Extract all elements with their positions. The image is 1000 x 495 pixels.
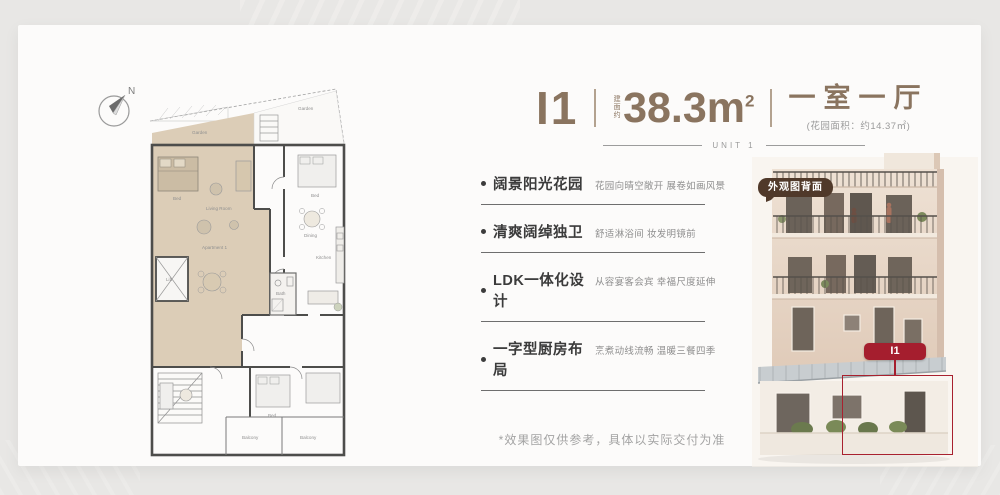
area-exponent: 2 (745, 91, 754, 110)
bathroom: Bath (270, 273, 296, 315)
svg-text:Apartment 1: Apartment 1 (202, 245, 227, 250)
kitchen: Kitchen (316, 227, 344, 283)
svg-text:Bath: Bath (276, 291, 286, 296)
feature-item: LDK一体化设计 从容宴客会宾 幸福尺度延伸 (481, 269, 705, 322)
room-label: Garden (192, 130, 208, 135)
svg-text:Bed: Bed (268, 413, 277, 418)
feature-desc: 从容宴客会宾 幸福尺度延伸 (595, 274, 716, 288)
feature-item: 阔景阳光花园 花园向晴空敞开 展卷如画风景 (481, 173, 705, 205)
layout-type-label: 一室一厅 (788, 85, 928, 112)
divider (770, 89, 772, 127)
area-value: 38.3m2 (623, 87, 754, 130)
compass-n-label: N (128, 86, 135, 97)
disclaimer-text: *效果图仅供参考，具体以实际交付为准 (486, 431, 738, 448)
unit-tag: I1 (864, 343, 926, 360)
bullet-icon (481, 229, 486, 234)
feature-title: 清爽阔绰独卫 (493, 221, 595, 242)
marketing-page: { "colors":{"accent_brown":"#8a745f","ba… (0, 0, 1000, 495)
divider-line (603, 145, 702, 146)
unit-highlight-box (842, 375, 953, 455)
feature-item: 清爽阔绰独卫 舒适淋浴间 妆发明镜前 (481, 221, 705, 253)
badge-label: 外观图背面 (768, 182, 823, 193)
feature-desc: 烹煮动线流畅 温暖三餐四季 (595, 343, 716, 357)
divider (594, 89, 596, 127)
feature-item: 一字型厨房布局 烹煮动线流畅 温暖三餐四季 (481, 338, 705, 391)
divider-line (766, 145, 865, 146)
svg-text:Bed: Bed (173, 196, 182, 201)
bullet-icon (481, 181, 486, 186)
room-label: Garden (298, 106, 314, 111)
furniture-right-unit: Bed Dining (298, 155, 342, 311)
callout-leader-line (894, 360, 896, 376)
unit-caption-row: UNIT 1 (603, 141, 865, 150)
content-card: N Garden Garden (18, 25, 981, 466)
building-photo: 外观图背面 I1 (746, 153, 988, 485)
layout-group: 一室一厅 (花园面积：约14.37㎡) (788, 85, 928, 132)
feature-title: LDK一体化设计 (493, 269, 595, 311)
feature-title: 阔景阳光花园 (493, 173, 595, 194)
exterior-view-badge: 外观图背面 (758, 178, 833, 197)
svg-text:Lift: Lift (166, 277, 173, 282)
svg-text:Living Room: Living Room (206, 206, 232, 211)
bullet-icon (481, 288, 486, 293)
feature-list: 阔景阳光花园 花园向晴空敞开 展卷如画风景 清爽阔绰独卫 舒适淋浴间 妆发明镜前… (481, 173, 705, 407)
unit-title-row: I1 建面约 38.3m2 一室一厅 (花园面积：约14.37㎡) (536, 79, 928, 137)
compass-north-icon: N (90, 81, 142, 133)
svg-text:Balcony: Balcony (300, 435, 317, 440)
area-group: 建面约 38.3m2 (612, 87, 754, 130)
lift: Lift (156, 257, 188, 301)
garden-area-note: (花园面积：约14.37㎡) (807, 118, 911, 132)
background-texture (240, 0, 520, 26)
svg-text:Balcony: Balcony (242, 435, 259, 440)
bullet-icon (481, 357, 486, 362)
svg-text:Kitchen: Kitchen (316, 255, 332, 260)
floor-plan: Garden Garden Lift (140, 77, 360, 472)
feature-desc: 花园向晴空敞开 展卷如画风景 (595, 178, 725, 192)
feature-title: 一字型厨房布局 (493, 338, 595, 380)
svg-text:Bed: Bed (311, 193, 320, 198)
area-prefix-label: 建面约 (612, 95, 620, 121)
unit-caption-label: UNIT 1 (712, 141, 755, 150)
feature-desc: 舒适淋浴间 妆发明镜前 (595, 226, 696, 240)
unit-code: I1 (536, 85, 578, 131)
svg-text:Dining: Dining (304, 233, 317, 238)
